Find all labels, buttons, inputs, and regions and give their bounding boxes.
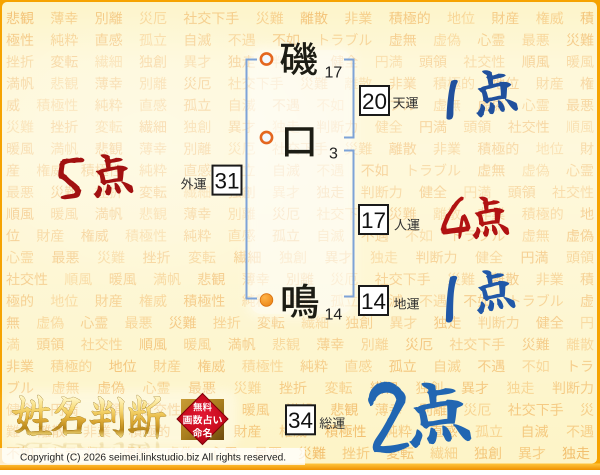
svg-text:17: 17 [361, 208, 386, 233]
svg-text:3: 3 [329, 146, 338, 163]
svg-text:20: 20 [362, 89, 387, 114]
svg-text:Copyright (C) 2026 seimei.link: Copyright (C) 2026 seimei.linkstudio.biz… [20, 453, 286, 464]
svg-text:17: 17 [325, 65, 343, 82]
svg-text:14: 14 [325, 307, 343, 324]
svg-text:34: 34 [288, 408, 313, 433]
svg-text:14: 14 [361, 289, 386, 314]
svg-text:31: 31 [214, 168, 239, 193]
